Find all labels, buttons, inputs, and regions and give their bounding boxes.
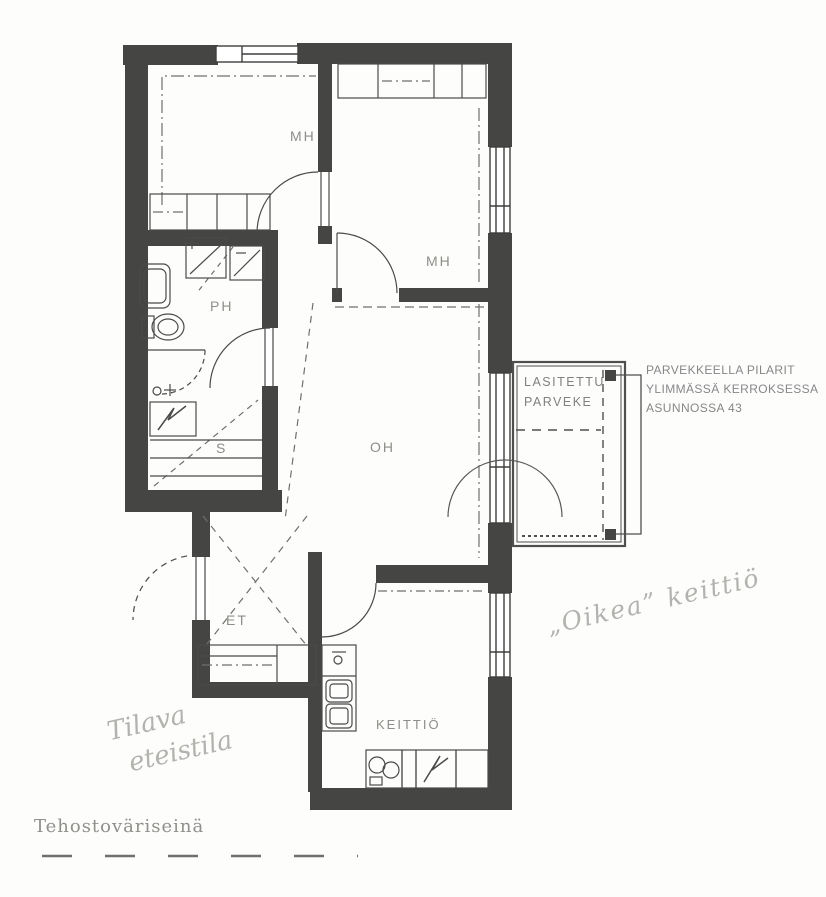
entrance-door: [133, 555, 210, 620]
pillar-leader-line: [616, 375, 641, 534]
balcony-pillar-note-line1: PARVEKKEELLA PILARIT: [646, 361, 826, 380]
balcony-label-line1: LASITETTU: [524, 375, 605, 389]
stove-symbol: [424, 756, 448, 782]
room-label-mh2: MH: [426, 253, 452, 269]
balcony-pillar-top: [605, 370, 616, 381]
kitchen-appliances: [366, 750, 488, 788]
bedroom2-door: [337, 233, 397, 293]
balcony-pillar-note: PARVEKKEELLA PILARIT YLIMMÄSSÄ KERROKSES…: [646, 361, 826, 418]
balcony-pillar-note-line3: ASUNNOSSA 43: [646, 399, 826, 418]
walls: [123, 43, 512, 810]
room-label-sauna: S: [216, 440, 227, 456]
balcony-door-window: [490, 373, 510, 523]
kitchen-window: [490, 593, 510, 677]
balcony-pillar-note-line2: YLIMMÄSSÄ KERROKSESSA: [646, 380, 826, 399]
bedroom1-door: [257, 172, 332, 233]
balcony: [513, 362, 641, 546]
kitchen-sink-counter: [322, 645, 356, 731]
bathroom-door: [210, 328, 278, 388]
toilet: [142, 314, 184, 340]
room-label-mh1: MH: [290, 128, 316, 144]
room-label-et: ET: [226, 612, 248, 628]
sauna-heater: [150, 402, 196, 436]
accent-wall-note: Tehostoväriseinä: [34, 816, 204, 837]
sauna-benches: [150, 440, 262, 476]
bedroom2-window: [490, 147, 510, 233]
balcony-pillar-bottom: [605, 529, 616, 540]
kitchen-door-swing: [322, 583, 376, 637]
room-label-ph: PH: [210, 298, 233, 314]
room-label-keittio: KEITTIÖ: [376, 717, 441, 732]
room-label-oh: OH: [370, 439, 395, 455]
top-window: [216, 46, 298, 62]
scanned-floorplan-page: MH MH PH S ET OH KEITTIÖ LASITETTU PARVE…: [0, 0, 826, 897]
balcony-label-line2: PARVEKE: [524, 395, 592, 409]
